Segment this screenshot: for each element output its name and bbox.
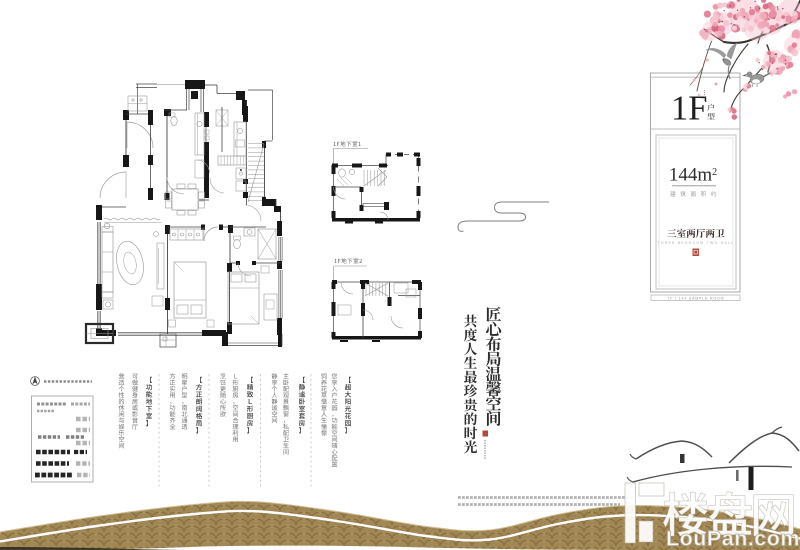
svg-text:1F: 1F: [671, 90, 707, 128]
svg-text:THREE BEDROOM TWO HALL: THREE BEDROOM TWO HALL: [658, 241, 735, 245]
svg-text:144m2: 144m2: [669, 165, 717, 186]
svg-text:LouPan.com: LouPan.com: [666, 527, 800, 550]
svg-text:1F | 144 SAMPLE ROOM: 1F | 144 SAMPLE ROOM: [668, 297, 725, 301]
